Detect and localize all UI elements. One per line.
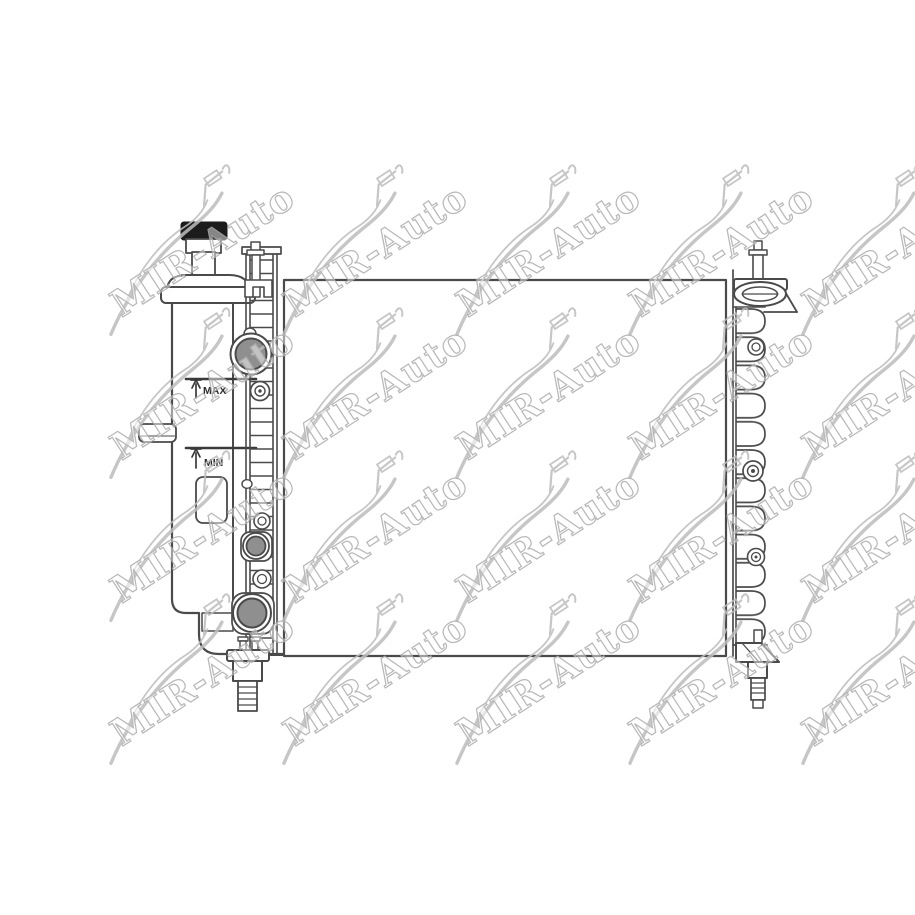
product-image: MAX MIN	[0, 0, 915, 915]
tank-bottom-step	[202, 613, 233, 631]
mounting-bracket	[139, 424, 176, 442]
sensor-port	[241, 532, 272, 561]
bolt-circle-left	[254, 513, 270, 529]
rung-boss	[242, 480, 252, 489]
filler-neck	[734, 241, 797, 312]
max-arrow-icon	[191, 380, 201, 398]
bolt-circle-right-mid	[743, 461, 763, 481]
tank-neck	[192, 252, 215, 277]
radiator-technical-drawing: MAX MIN	[0, 0, 915, 915]
expansion-tank-cap	[181, 222, 227, 240]
bolt-circle-right-bottom	[748, 549, 765, 566]
min-arrow-icon	[191, 449, 201, 468]
min-label: MIN	[204, 457, 223, 469]
bolt-circle-right-top	[748, 339, 764, 355]
tank-flange	[161, 287, 255, 303]
hose-port-lower	[232, 593, 274, 634]
max-label: MAX	[203, 385, 226, 397]
radiator-core	[284, 280, 726, 656]
cap-base	[186, 239, 221, 253]
small-fitting-lower	[253, 570, 271, 588]
small-fitting-upper	[251, 382, 270, 401]
label-plate	[196, 477, 227, 523]
